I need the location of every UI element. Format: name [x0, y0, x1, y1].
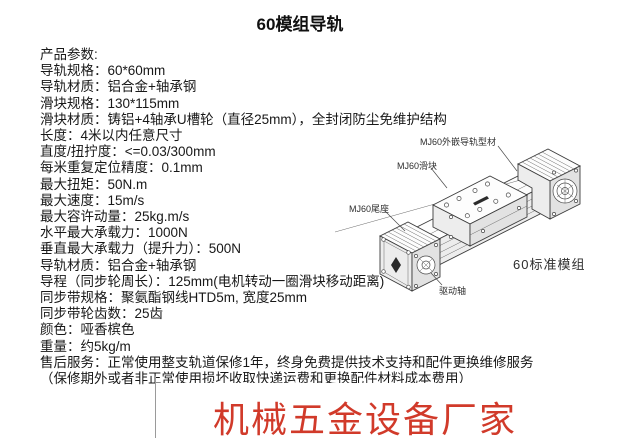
rail-leader-line [498, 146, 517, 171]
manufacturer-watermark: 机械五金设备厂家 [213, 391, 517, 443]
rail-label: MJ60外嵌导轨型材 [420, 136, 496, 147]
slider-leader-line [431, 168, 447, 188]
tail-label: MJ60尾座 [349, 203, 389, 214]
param-line: 导轨规格：60*60mm [40, 63, 615, 79]
param-line: 重量：约5kg/m [40, 339, 615, 355]
module-diagram: MJ60外嵌导轨型材 MJ60滑块 MJ60尾座 驱动轴 60标准模组 [335, 128, 620, 302]
param-line: 滑块规格：130*115mm [40, 96, 615, 112]
slider-label: MJ60滑块 [397, 160, 437, 171]
diagram-caption: 60标准模组 [513, 257, 585, 272]
param-heading: 产品参数: [40, 47, 615, 63]
param-line: 导轨材质：铝合金+轴承钢 [40, 79, 615, 95]
param-line: 售后服务：正常使用整支轨道保修1年，终身免费提供技术支持和配件更换维修服务 [40, 355, 615, 371]
param-line: 同步带轮齿数：25齿 [40, 306, 615, 322]
watermark-left-border [155, 376, 156, 438]
shaft-label: 驱动轴 [439, 285, 466, 296]
param-line: 滑块材质：铸铝+4轴承U槽轮（直径25mm），全封闭防尘免维护结构 [40, 112, 615, 128]
param-line: 颜色：哑香槟色 [40, 322, 615, 338]
page-title: 60模组导轨 [0, 10, 600, 35]
